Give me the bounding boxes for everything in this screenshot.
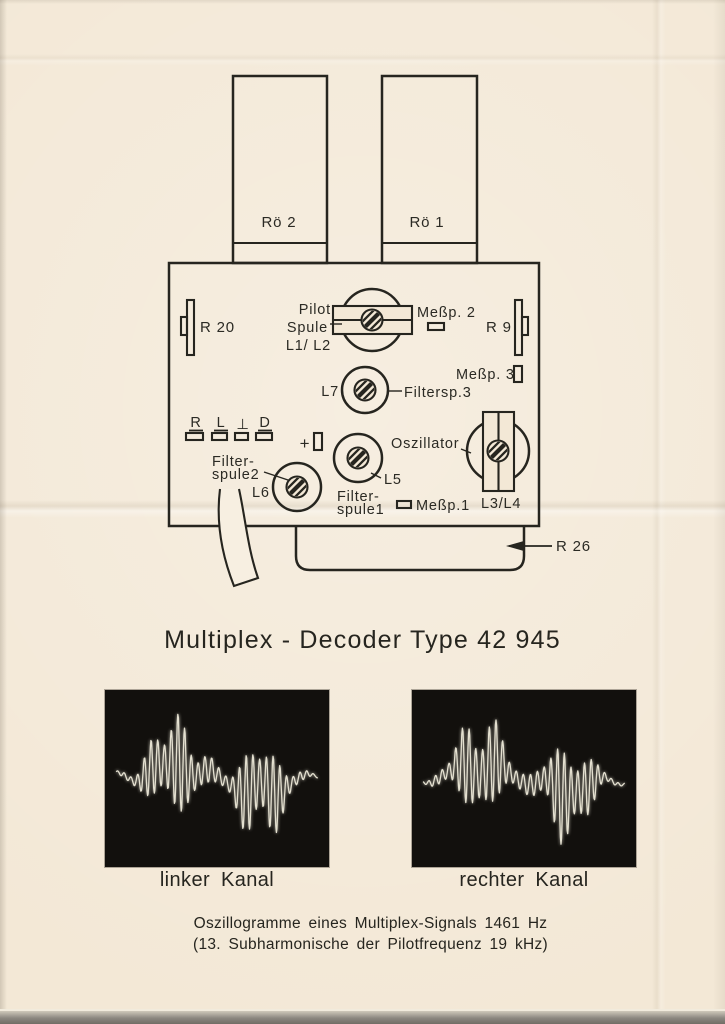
coil-l3l4-label: L3/L4 [481, 496, 521, 512]
tube-ro2-label: Rö 2 [262, 214, 297, 231]
r26-arrow-icon [506, 541, 523, 550]
test-point-2-label: Meßp. 2 [417, 305, 476, 321]
pilot-label-2: Spule [287, 320, 328, 336]
r26-strip [296, 526, 524, 570]
tube-ro1-label: Rö 1 [410, 214, 445, 231]
scanned-page: Rö 2 Rö 1 R 20 R 9 [0, 0, 725, 1024]
waveform-trace-right [412, 690, 636, 867]
screw-head-icon [285, 475, 309, 499]
pilot-coil-l1-l2: Pilot Spule L1/ L2 [286, 289, 412, 354]
pilot-label-1: Pilot [299, 302, 331, 318]
resistor-r20-label: R 20 [200, 319, 235, 336]
oscillogram-right-photo [412, 690, 636, 867]
test-point-2: Meßp. 2 [417, 305, 476, 330]
tube-ro1: Rö 1 [382, 76, 477, 263]
diagram-title: Multiplex - Decoder Type 42 945 [0, 626, 725, 655]
waveform-trace-left [105, 690, 329, 867]
oscillogram-left-label: linker Kanal [105, 869, 329, 892]
resistor-r20: R 20 [181, 300, 235, 355]
pilot-label-3: L1/ L2 [286, 338, 331, 354]
test-point-1: Meßp.1 [397, 498, 470, 514]
oscillator-label: Oszillator [391, 436, 459, 452]
caption-line-2: (13. Subharmonische der Pilotfrequenz 19… [0, 934, 725, 955]
caption-line-1: Oszillogramme eines Multiplex-Signals 14… [0, 913, 725, 934]
filterspule2-label-2: spule2 [212, 467, 260, 483]
jack-ground-label: ⊥ [236, 417, 249, 433]
scan-edge-shadow [0, 1009, 725, 1024]
plus-test-jack: + [300, 433, 322, 453]
jack-r-label: R [190, 415, 201, 431]
resistor-r26-label: R 26 [556, 538, 591, 555]
flex-ribbon [219, 489, 258, 586]
filterspule1-label-2: spule1 [337, 502, 385, 518]
jack-l-label: L [217, 415, 226, 431]
screw-head-icon [346, 446, 370, 470]
resistor-r9: R 9 [486, 300, 528, 355]
screw-head-icon [353, 378, 377, 402]
plus-jack-socket [314, 433, 322, 450]
test-point-marker [397, 501, 411, 508]
r26-pointer: R 26 [506, 538, 591, 555]
figure-caption: Oszillogramme eines Multiplex-Signals 14… [0, 913, 725, 955]
decoder-top-view-diagram: Rö 2 Rö 1 R 20 R 9 [0, 0, 725, 600]
jack-r-socket [186, 433, 203, 440]
oscillogram-right-label: rechter Kanal [412, 869, 636, 892]
jack-d-label: D [259, 415, 270, 431]
test-point-1-label: Meßp.1 [416, 498, 470, 514]
oscillogram-left-photo [105, 690, 329, 867]
test-point-marker [514, 366, 522, 382]
coil-l7-label: L7 [321, 384, 339, 400]
filter-coil-3: L7 Filtersp.3 [321, 367, 471, 413]
resistor-r9-label: R 9 [486, 319, 512, 336]
plus-jack-label: + [300, 434, 311, 453]
oscillator-coil: Oszillator L3/L4 [391, 412, 529, 512]
coil-l5-label: L5 [384, 472, 402, 488]
coil-l6-label: L6 [252, 485, 270, 501]
jack-row: R L ⊥ D [186, 415, 272, 440]
test-point-3: Meßp. 3 [456, 366, 522, 383]
jack-ground-socket [235, 433, 248, 440]
filtersp3-label: Filtersp.3 [404, 385, 472, 401]
tube-ro2: Rö 2 [233, 76, 327, 263]
jack-l-socket [212, 433, 227, 440]
jack-d-socket [256, 433, 272, 440]
test-point-marker [428, 323, 444, 330]
test-point-3-label: Meßp. 3 [456, 367, 515, 383]
